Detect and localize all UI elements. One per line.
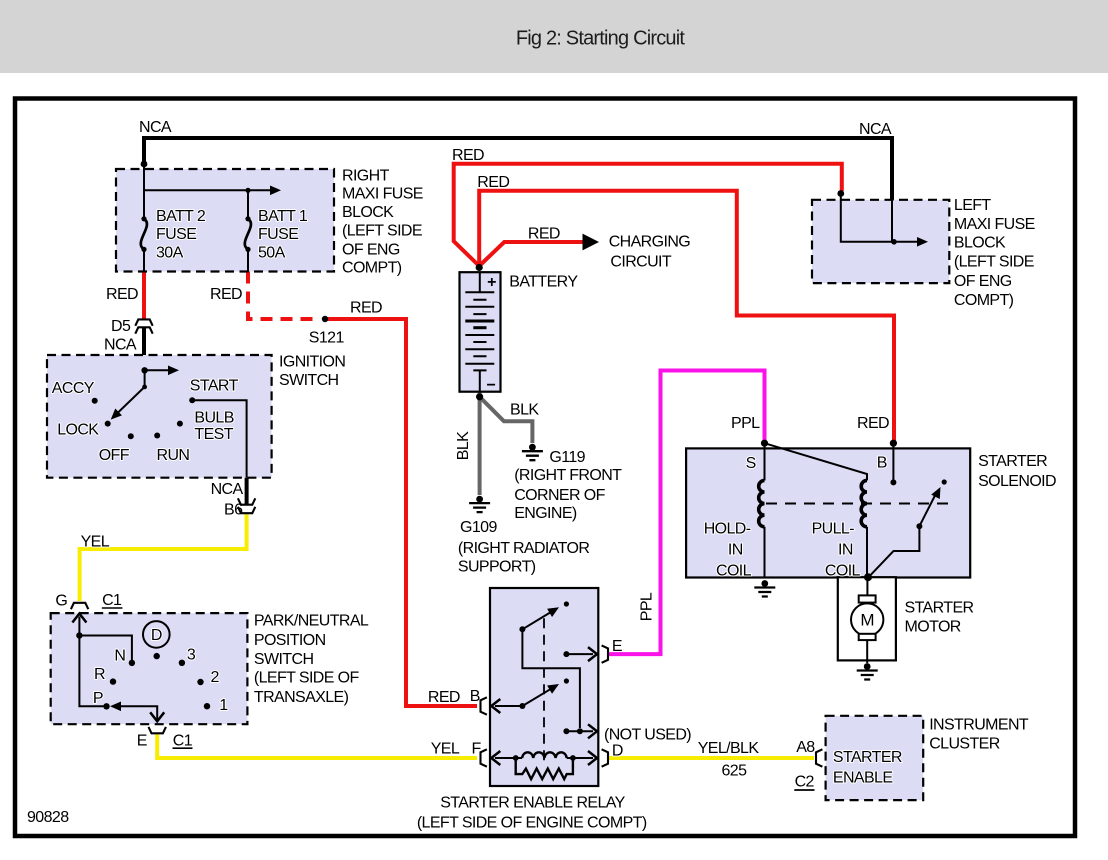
svg-text:PPL: PPL — [731, 415, 760, 432]
svg-text:RED: RED — [106, 286, 138, 303]
svg-text:MAXI FUSE: MAXI FUSE — [954, 216, 1035, 233]
svg-text:(LEFT SIDE OF: (LEFT SIDE OF — [254, 670, 360, 687]
svg-text:MAXI FUSE: MAXI FUSE — [342, 186, 423, 203]
svg-text:NCA: NCA — [211, 481, 244, 498]
svg-text:BLOCK: BLOCK — [954, 234, 1006, 251]
svg-text:SOLENOID: SOLENOID — [978, 473, 1056, 490]
svg-text:3: 3 — [187, 646, 196, 663]
svg-text:2: 2 — [211, 669, 220, 686]
svg-text:TEST: TEST — [194, 426, 233, 443]
svg-text:NCA: NCA — [859, 121, 892, 138]
svg-text:E: E — [137, 733, 147, 750]
svg-text:RED: RED — [452, 147, 484, 164]
svg-text:RIGHT: RIGHT — [342, 168, 390, 185]
svg-text:FUSE: FUSE — [258, 226, 298, 243]
svg-text:BULB: BULB — [194, 410, 233, 427]
svg-text:YEL/BLK: YEL/BLK — [698, 740, 760, 757]
svg-text:IN: IN — [838, 542, 853, 559]
svg-text:CLUSTER: CLUSTER — [929, 736, 1000, 753]
svg-text:A8: A8 — [796, 739, 815, 756]
svg-text:RED: RED — [857, 415, 889, 432]
svg-text:(RIGHT RADIATOR: (RIGHT RADIATOR — [458, 540, 589, 557]
svg-text:ENGINE): ENGINE) — [514, 505, 577, 522]
svg-text:S: S — [746, 455, 756, 472]
svg-text:(LEFT SIDE OF ENGINE COMPT): (LEFT SIDE OF ENGINE COMPT) — [417, 815, 647, 832]
svg-text:90828: 90828 — [27, 809, 69, 826]
svg-text:1: 1 — [219, 697, 228, 714]
svg-text:G: G — [55, 593, 67, 610]
svg-text:BATT 1: BATT 1 — [258, 208, 308, 225]
svg-text:BLK: BLK — [455, 431, 472, 460]
svg-text:LEFT: LEFT — [954, 197, 992, 214]
svg-text:BATTERY: BATTERY — [509, 274, 578, 291]
svg-text:(LEFT SIDE: (LEFT SIDE — [342, 223, 422, 240]
svg-text:BATT 2: BATT 2 — [156, 208, 206, 225]
svg-text:C1: C1 — [102, 592, 122, 609]
svg-text:E: E — [612, 638, 622, 655]
svg-text:OFF: OFF — [99, 447, 130, 464]
svg-text:M: M — [860, 611, 874, 630]
svg-text:N: N — [114, 647, 125, 664]
svg-text:YEL: YEL — [81, 534, 110, 551]
svg-text:NCA: NCA — [139, 119, 172, 136]
svg-text:CIRCUIT: CIRCUIT — [610, 254, 672, 271]
svg-text:50A: 50A — [258, 245, 286, 262]
svg-text:STARTER: STARTER — [905, 600, 974, 617]
svg-text:RED: RED — [210, 286, 242, 303]
svg-text:LOCK: LOCK — [57, 422, 99, 439]
svg-text:CHARGING: CHARGING — [609, 233, 691, 250]
svg-text:B: B — [470, 688, 480, 705]
svg-text:CORNER OF: CORNER OF — [514, 487, 605, 504]
svg-text:INSTRUMENT: INSTRUMENT — [929, 717, 1029, 734]
svg-text:RED: RED — [350, 299, 382, 316]
svg-text:COIL: COIL — [825, 562, 861, 579]
svg-text:POSITION: POSITION — [254, 632, 326, 649]
svg-text:RED: RED — [477, 174, 509, 191]
svg-text:START: START — [190, 378, 239, 395]
svg-text:G109: G109 — [460, 519, 497, 536]
svg-text:NCA: NCA — [104, 337, 137, 354]
svg-text:PULL-: PULL- — [812, 521, 855, 538]
svg-text:RUN: RUN — [157, 447, 190, 464]
svg-text:OF ENG: OF ENG — [954, 273, 1012, 290]
svg-text:C1: C1 — [173, 733, 193, 750]
svg-text:SUPPORT): SUPPORT) — [458, 559, 536, 576]
svg-text:COMPT): COMPT) — [954, 292, 1014, 309]
svg-text:P: P — [93, 690, 103, 707]
svg-text:D: D — [151, 627, 162, 644]
svg-text:S121: S121 — [309, 329, 345, 346]
svg-text:ENABLE: ENABLE — [833, 769, 893, 786]
svg-text:625: 625 — [722, 763, 748, 780]
svg-text:HOLD-: HOLD- — [704, 521, 751, 538]
svg-text:PPL: PPL — [639, 592, 656, 621]
svg-text:OF ENG: OF ENG — [342, 241, 400, 258]
svg-text:+: + — [487, 274, 496, 291]
svg-text:PARK/NEUTRAL: PARK/NEUTRAL — [254, 613, 369, 630]
svg-text:G119: G119 — [549, 449, 585, 466]
svg-text:D5: D5 — [111, 318, 131, 335]
svg-text:YEL: YEL — [431, 741, 460, 758]
svg-text:COMPT): COMPT) — [342, 260, 402, 277]
svg-text:(NOT USED): (NOT USED) — [604, 727, 691, 744]
svg-text:ACCY: ACCY — [52, 380, 95, 397]
svg-text:30A: 30A — [156, 245, 184, 262]
svg-text:MOTOR: MOTOR — [905, 619, 961, 636]
svg-text:C2: C2 — [795, 774, 815, 791]
svg-text:D: D — [612, 743, 623, 760]
svg-text:BLOCK: BLOCK — [342, 204, 394, 221]
svg-text:FUSE: FUSE — [156, 226, 196, 243]
svg-text:STARTER ENABLE RELAY: STARTER ENABLE RELAY — [440, 795, 625, 812]
svg-text:BLK: BLK — [510, 402, 539, 419]
svg-text:(LEFT SIDE: (LEFT SIDE — [954, 253, 1034, 270]
svg-text:Fig 2: Starting Circuit: Fig 2: Starting Circuit — [516, 28, 686, 50]
svg-text:COIL: COIL — [716, 562, 752, 579]
svg-text:IGNITION: IGNITION — [279, 354, 345, 371]
svg-text:−: − — [487, 377, 496, 394]
svg-text:IN: IN — [728, 542, 743, 559]
svg-text:SWITCH: SWITCH — [279, 372, 339, 389]
svg-text:SWITCH: SWITCH — [254, 651, 314, 668]
svg-text:(RIGHT FRONT: (RIGHT FRONT — [514, 467, 622, 484]
svg-text:TRANSAXLE): TRANSAXLE) — [254, 689, 349, 706]
svg-text:STARTER: STARTER — [978, 453, 1047, 470]
svg-text:STARTER: STARTER — [833, 749, 902, 766]
svg-text:RED: RED — [428, 689, 460, 706]
svg-text:B: B — [877, 455, 887, 472]
svg-text:R: R — [94, 666, 105, 683]
svg-text:RED: RED — [528, 226, 560, 243]
